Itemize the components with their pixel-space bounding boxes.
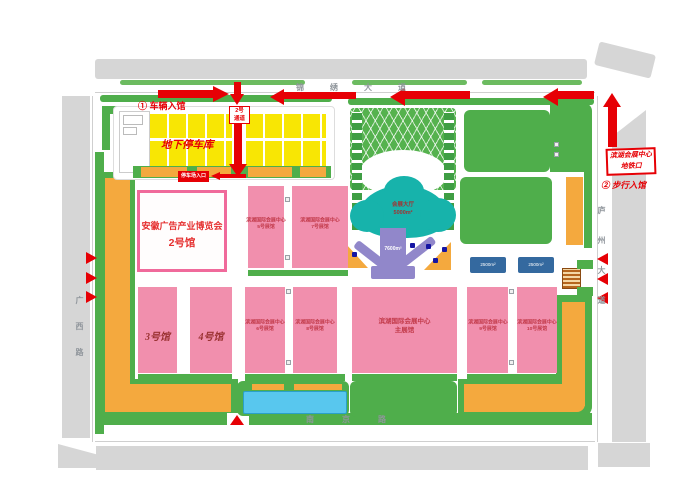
vehicle-route-arrow-body <box>158 90 213 98</box>
stair-mark <box>286 289 291 294</box>
road-north <box>95 59 587 79</box>
west-plaza-orange <box>105 384 231 412</box>
parking-entry-badge-label: 停车场入口 <box>181 173 206 179</box>
green-strip <box>467 374 557 381</box>
vehicle-entrance-label: ① 车辆入馆 <box>138 99 186 112</box>
expo-hall-2-number: 2号馆 <box>140 235 224 250</box>
hall-label-line2: 10号展馆 <box>511 326 563 333</box>
expo-hall-2: 安徽广告产业博览会 2号馆 <box>137 190 227 272</box>
hall-5: 滨湖国际会展中心 5号展馆 <box>248 186 284 268</box>
green-mini <box>577 287 593 296</box>
stair-mark <box>285 197 290 202</box>
hall-label-line2: 6号展馆 <box>239 326 291 333</box>
hall-10: 滨湖国际会展中心 10号展馆 <box>517 287 557 373</box>
concourse-base <box>371 266 415 279</box>
hall-9: 滨湖国际会展中心 9号展馆 <box>467 287 508 373</box>
green-building <box>460 177 552 244</box>
hall-label: 滨湖国际会展中心 10号展馆 <box>511 319 563 332</box>
walk-route-arrow-head-icon <box>603 93 621 107</box>
badge-arrow-head-icon <box>211 172 220 180</box>
metro-exit-line2: 地铁口 <box>608 161 654 173</box>
road-name-north: 锦绣大道 <box>296 82 432 93</box>
west-entry-arrow-icon <box>86 272 97 284</box>
west-plaza-orange <box>105 178 130 412</box>
stair-mark <box>286 360 291 365</box>
hall-label: 滨湖国际会展中心 6号展馆 <box>239 319 291 332</box>
blue-bar-2: 2500m² <box>518 257 554 273</box>
hall-label: 滨湖国际会展中心 5号展馆 <box>240 217 292 230</box>
orange-strip <box>252 384 284 390</box>
hall-label: 滨湖国际会展中心 7号展馆 <box>294 217 346 230</box>
gate-down-arrow-head-icon <box>230 94 244 105</box>
hall-label-line1: 滨湖国际会展中心 <box>461 319 513 326</box>
cyan-canopy <box>243 391 347 414</box>
hall-label-line1: 滨湖国际会展中心 <box>373 318 437 327</box>
badge-arrow-body <box>220 174 246 178</box>
green-strip <box>138 374 232 381</box>
metro-exit-line1: 滨湖会展中心 <box>608 150 654 162</box>
hall-main: 滨湖国际会展中心 主展馆 <box>352 287 457 373</box>
hall-4: 4号馆 <box>190 287 232 373</box>
green-edge-east <box>584 172 592 248</box>
marker-dot <box>433 258 438 263</box>
site-boundary-line-bottom <box>95 441 595 442</box>
site-boundary-line-left <box>92 96 93 442</box>
east-plaza-orange <box>464 384 585 412</box>
site-map: 会展大厅 5000m² 7600m² 滨湖国际会展中心 5号展馆 滨湖国际会展中… <box>0 0 700 495</box>
hall-4-label: 4号馆 <box>190 328 232 343</box>
hatched-kiosk <box>562 268 581 289</box>
west-entry-arrow-icon <box>86 252 97 264</box>
parking-grid-east <box>246 114 326 166</box>
metro-exit-box: 滨湖会展中心 地铁口 <box>606 147 657 176</box>
gate-box: 2号 通道 <box>229 106 250 124</box>
hall-label-line2: 主展馆 <box>373 327 437 336</box>
gate-box-line2: 通道 <box>230 115 249 123</box>
west-route-arrow-head-icon <box>270 89 284 105</box>
hall-label: 滨湖国际会展中心 9号展馆 <box>461 319 513 332</box>
hall-label-line2: 7号展馆 <box>294 224 346 231</box>
hall-label-line1: 滨湖国际会展中心 <box>240 217 292 224</box>
stair-mark <box>285 255 290 260</box>
blue-bar-2-label: 2500m² <box>528 262 543 267</box>
marker-dot <box>442 247 447 252</box>
hall-label-line2: 8号展馆 <box>289 326 341 333</box>
concourse-area-label: 7600m² <box>380 246 406 252</box>
orange-strip <box>294 384 342 390</box>
orange-strip-east <box>566 177 583 245</box>
west-route-arrow-body <box>558 91 594 99</box>
stair-mark <box>509 289 514 294</box>
green-strip <box>352 374 457 381</box>
walk-route-arrow-body <box>608 107 617 147</box>
road-median <box>120 80 305 85</box>
parking-ramp <box>123 127 137 135</box>
atrium-area: 5000m² <box>358 209 448 217</box>
west-route-arrow-head-icon <box>543 88 558 106</box>
atrium-label: 会展大厅 5000m² <box>358 201 448 218</box>
hall-label: 滨湖国际会展中心 主展馆 <box>373 318 437 336</box>
walk-entrance-label: ② 步行入馆 <box>601 179 646 191</box>
road-north-east-segment <box>594 41 656 78</box>
gate-box-line1: 2号 <box>230 107 249 115</box>
hall-label-line2: 9号展馆 <box>461 326 513 333</box>
marker-dot <box>352 252 357 257</box>
parking-ramp <box>123 115 143 125</box>
road-name-south: 南京路 <box>306 414 414 425</box>
green-strip <box>245 374 345 381</box>
green-mini <box>577 260 593 269</box>
blue-bar-1-label: 2500m² <box>480 262 495 267</box>
atrium-name: 会展大厅 <box>358 201 448 209</box>
west-entry-arrow-icon <box>86 291 97 303</box>
hall-label-line2: 5号展馆 <box>240 224 292 231</box>
hall-6: 滨湖国际会展中心 6号展馆 <box>245 287 285 373</box>
green-building <box>550 103 592 172</box>
green-building <box>350 381 457 417</box>
road-name-east: 庐州大道 <box>596 206 607 326</box>
stair-mark <box>554 152 559 157</box>
hall-7: 滨湖国际会展中心 7号展馆 <box>292 186 348 268</box>
green-strip <box>248 270 348 276</box>
road-west-taper <box>58 444 98 468</box>
marker-dot <box>426 244 431 249</box>
vehicle-route-arrow-head-icon <box>213 86 229 102</box>
parking-orange-cell <box>248 167 292 177</box>
marker-dot <box>410 243 415 248</box>
parking-down-arrow-body <box>234 124 242 166</box>
hall-3: 3号馆 <box>138 287 177 373</box>
parking-orange-cell <box>300 167 326 177</box>
blue-bar-1: 2500m² <box>470 257 506 273</box>
hall-label-line1: 滨湖国际会展中心 <box>289 319 341 326</box>
stair-mark <box>554 142 559 147</box>
expo-hall-2-title: 安徽广告产业博览会 <box>140 219 224 232</box>
hall-8: 滨湖国际会展中心 8号展馆 <box>293 287 337 373</box>
green-building <box>464 110 550 172</box>
hall-label: 滨湖国际会展中心 8号展馆 <box>289 319 341 332</box>
road-south <box>96 446 588 470</box>
west-route-arrow-body <box>284 92 356 99</box>
south-entry-arrow-icon <box>230 415 244 425</box>
road-south-east-segment <box>598 443 650 467</box>
parking-entry-badge: 停车场入口 <box>178 171 209 182</box>
hall-3-label: 3号馆 <box>138 328 177 343</box>
hall-label-line1: 滨湖国际会展中心 <box>511 319 563 326</box>
road-median <box>482 80 582 85</box>
road-name-west: 广西路 <box>74 296 85 374</box>
underground-parking-label: 地下停车库 <box>161 137 214 152</box>
road-west <box>62 96 90 438</box>
hall-label-line1: 滨湖国际会展中心 <box>239 319 291 326</box>
hall-label-line1: 滨湖国际会展中心 <box>294 217 346 224</box>
stair-mark <box>509 360 514 365</box>
